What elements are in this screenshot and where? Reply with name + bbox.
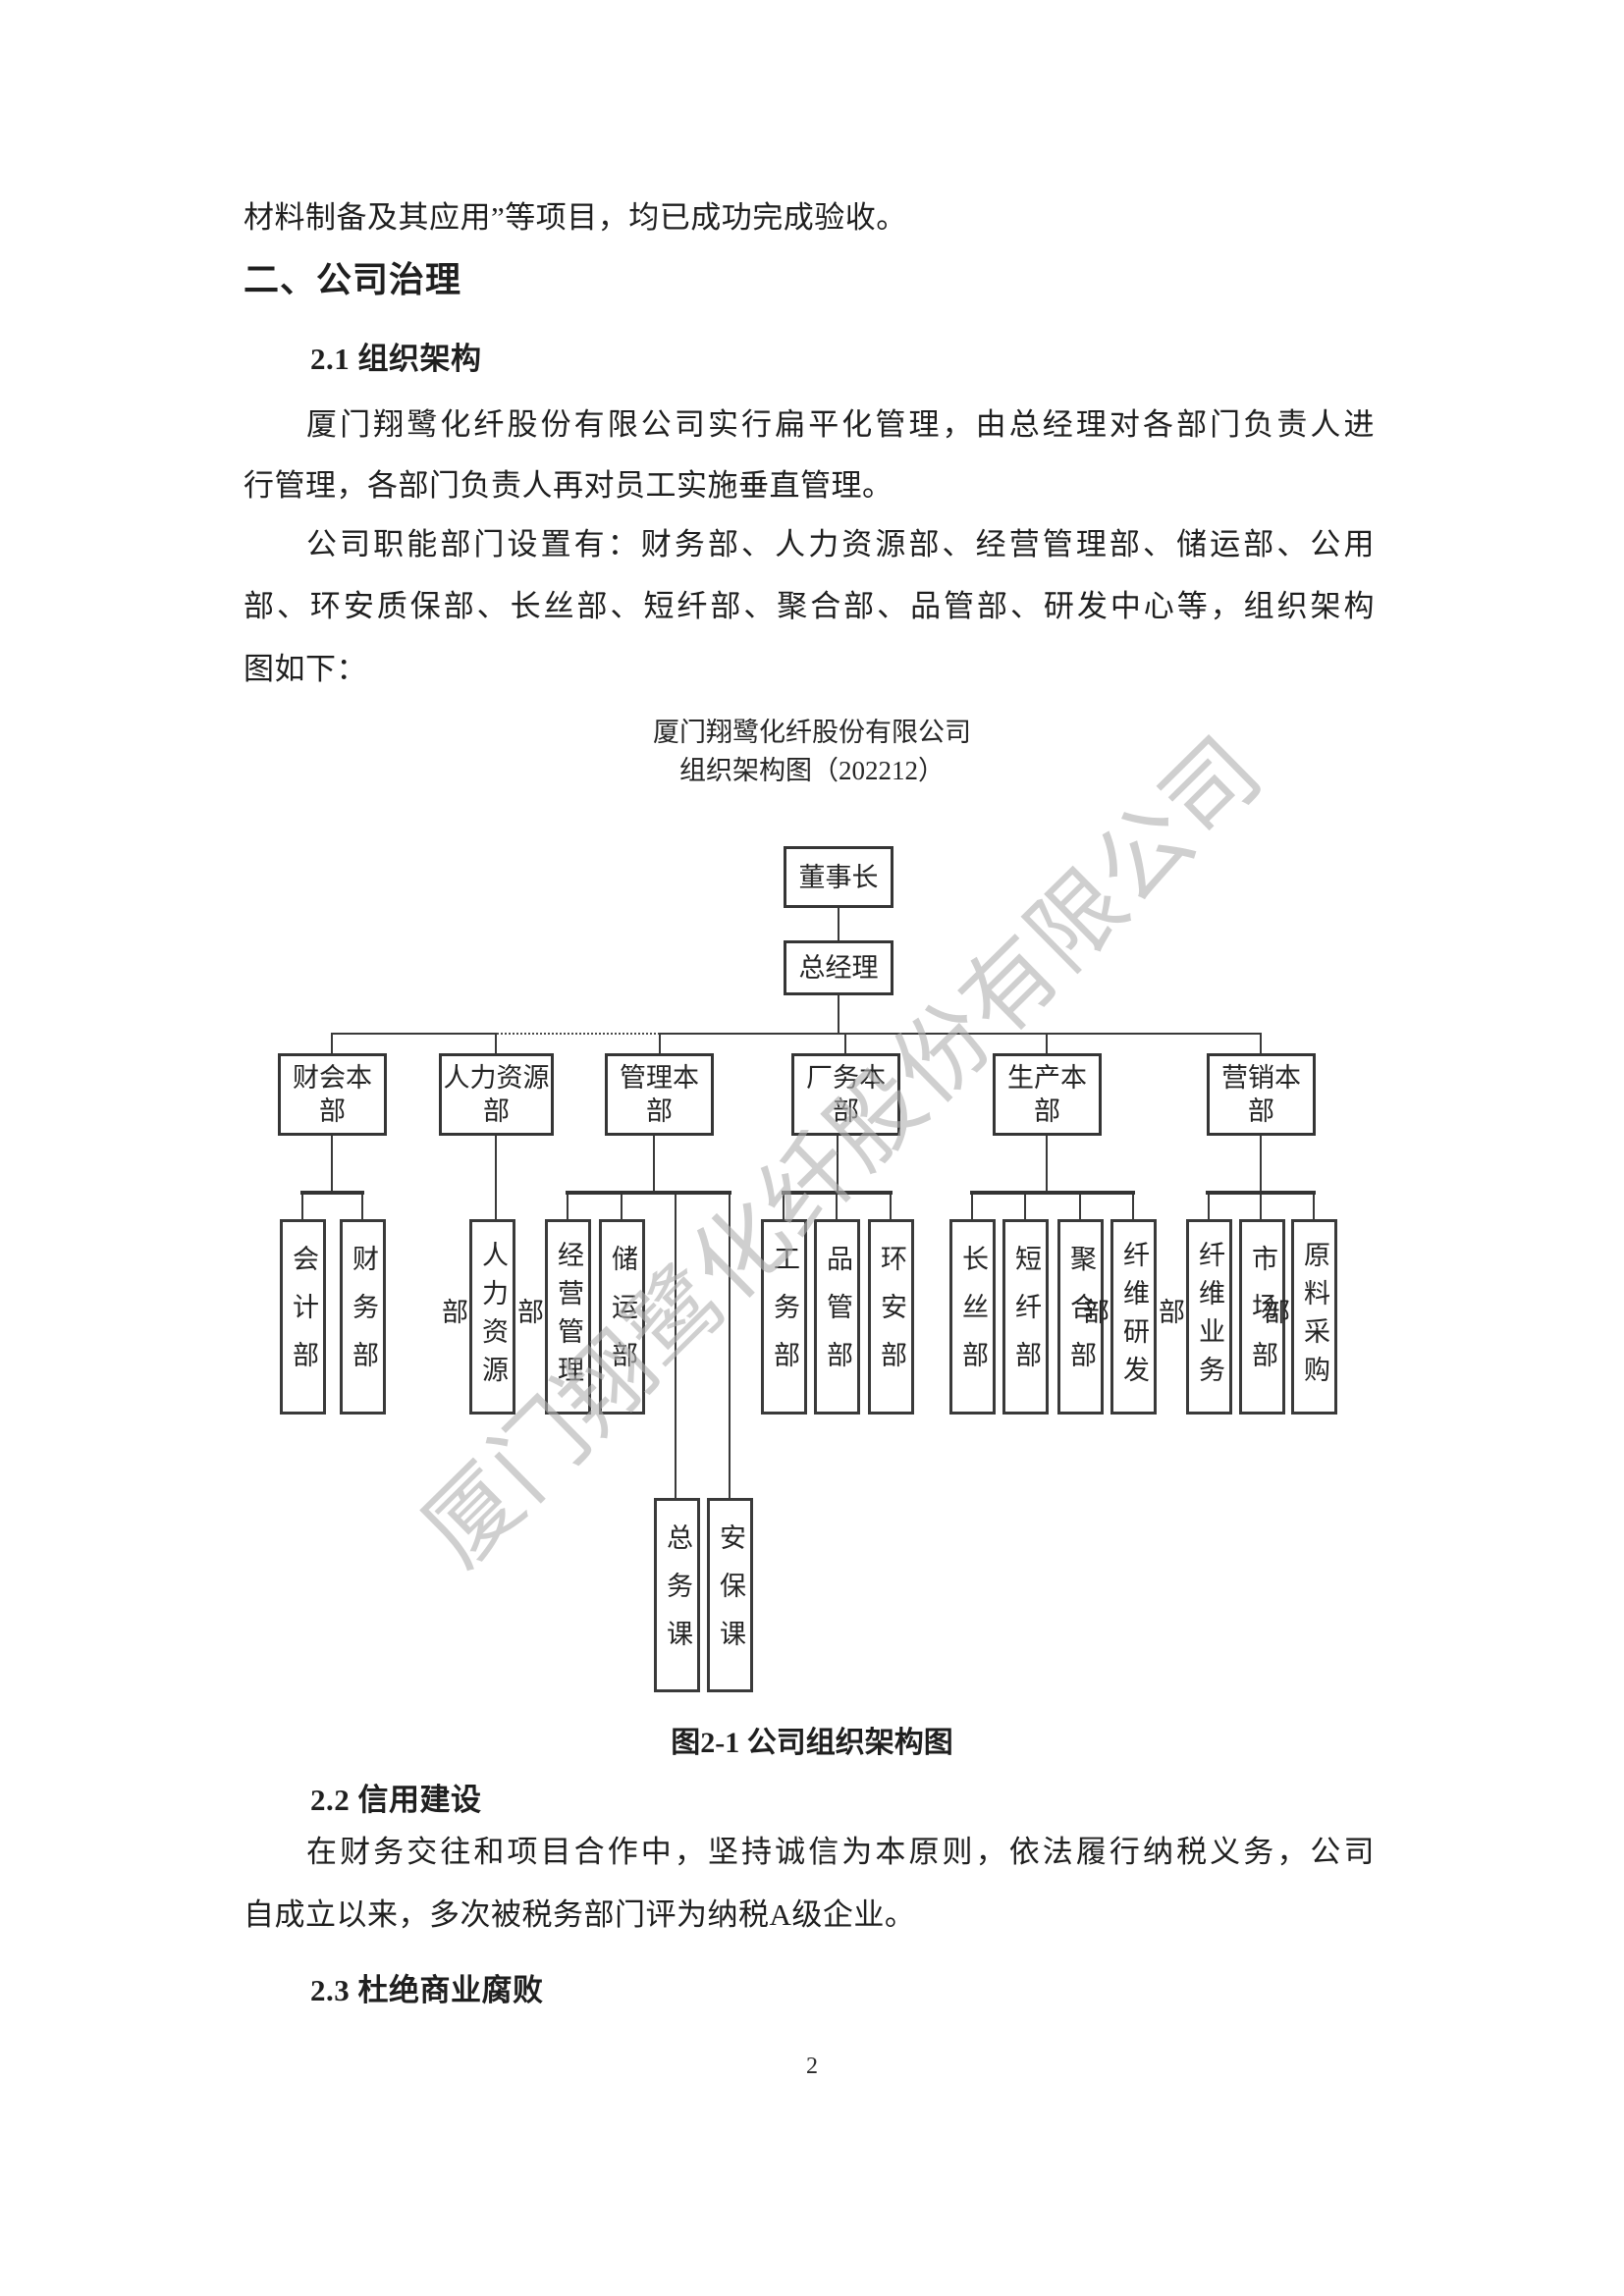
org-box-division-finance: 财会本部 [278, 1053, 387, 1136]
paragraph-line: 自成立以来，多次被税务部门评为纳税A级企业。 [244, 1895, 1375, 1936]
connector-line [1313, 1195, 1315, 1219]
org-chart-title-line2: 组织架构图（202212） [0, 752, 1624, 790]
page-number: 2 [0, 2054, 1624, 2080]
connector-line [971, 1195, 973, 1219]
connector-line [1208, 1195, 1210, 1219]
connector-line [331, 1136, 333, 1191]
paragraph-line: 在财务交往和项目合作中，坚持诚信为本原则，依法履行纳税义务，公司 [244, 1832, 1375, 1873]
paragraph-line: 部、环安质保部、长丝部、短纤部、聚合部、品管部、研发中心等，组织架构 [244, 586, 1375, 627]
connector-line [653, 1136, 655, 1191]
org-box-dept-fiber-business: 纤维业务部 [1186, 1219, 1232, 1415]
connector-line [301, 1195, 303, 1219]
figure-caption: 图2-1 公司组织架构图 [0, 1718, 1624, 1761]
org-box-dept-ehs: 环安部 [868, 1219, 914, 1415]
org-box-division-management: 管理本部 [605, 1053, 714, 1136]
org-box-chairman: 董事长 [784, 846, 893, 908]
org-box-dept-accounting: 会计部 [280, 1219, 326, 1415]
connector-line [1046, 1033, 1048, 1053]
subsection-heading-2-3: 2.3 杜绝商业腐败 [310, 1965, 544, 2009]
connector-line [495, 1033, 497, 1053]
org-box-section-general-affairs: 总务课 [654, 1498, 700, 1692]
connector-line-dotted [497, 1033, 660, 1035]
subsection-heading-2-1: 2.1 组织架构 [310, 334, 482, 378]
connector-line [1260, 1136, 1262, 1191]
connector-line [495, 1136, 497, 1219]
org-chart-title-line1: 厦门翔鹭化纤股份有限公司 [0, 714, 1624, 752]
connector-line [1046, 1136, 1048, 1191]
connector-line [659, 1033, 661, 1053]
document-page: 材料制备及其应用”等项目，均已成功完成验收。 二、公司治理 2.1 组织架构 厦… [0, 0, 1624, 2296]
paragraph-line: 行管理，各部门负责人再对员工实施垂直管理。 [244, 465, 1375, 507]
connector-line [621, 1195, 623, 1219]
paragraph-line: 公司职能部门设置有：财务部、人力资源部、经营管理部、储运部、公用 [244, 524, 1375, 565]
connector-bar [300, 1191, 364, 1195]
subsection-heading-2-2: 2.2 信用建设 [310, 1775, 482, 1819]
connector-bar [970, 1191, 1135, 1195]
connector-line [1132, 1195, 1134, 1219]
connector-line [1260, 1033, 1262, 1053]
org-box-dept-finance: 财务部 [340, 1219, 386, 1415]
connector-line [1024, 1195, 1026, 1219]
org-box-division-marketing: 营销本部 [1207, 1053, 1316, 1136]
diagonal-watermark: 厦门翔鹭化纤股份有限公司 [388, 701, 1287, 1590]
org-box-dept-staple-fiber: 短纤部 [1002, 1219, 1049, 1415]
connector-line [838, 908, 839, 940]
org-box-dept-raw-material-purchasing: 原料采购部 [1291, 1219, 1337, 1415]
org-box-dept-filament: 长丝部 [949, 1219, 996, 1415]
connector-line [1260, 1195, 1262, 1219]
paragraph-line: 厦门翔鹭化纤股份有限公司实行扁平化管理，由总经理对各部门负责人进 [244, 404, 1375, 446]
section-heading-2: 二、公司治理 [244, 251, 461, 302]
connector-line [567, 1195, 568, 1219]
org-box-general-manager: 总经理 [784, 940, 893, 995]
connector-line [1079, 1195, 1081, 1219]
connector-line [838, 995, 839, 1033]
connector-line [331, 1033, 333, 1053]
connector-line [890, 1195, 892, 1219]
org-box-division-hr: 人力资源部 [439, 1053, 554, 1136]
paragraph-line: 图如下： [244, 649, 1375, 690]
connector-line [361, 1195, 363, 1219]
connector-line [332, 1033, 497, 1035]
paragraph-tail-line: 材料制备及其应用”等项目，均已成功完成验收。 [244, 197, 1375, 239]
org-box-section-security: 安保课 [707, 1498, 753, 1692]
